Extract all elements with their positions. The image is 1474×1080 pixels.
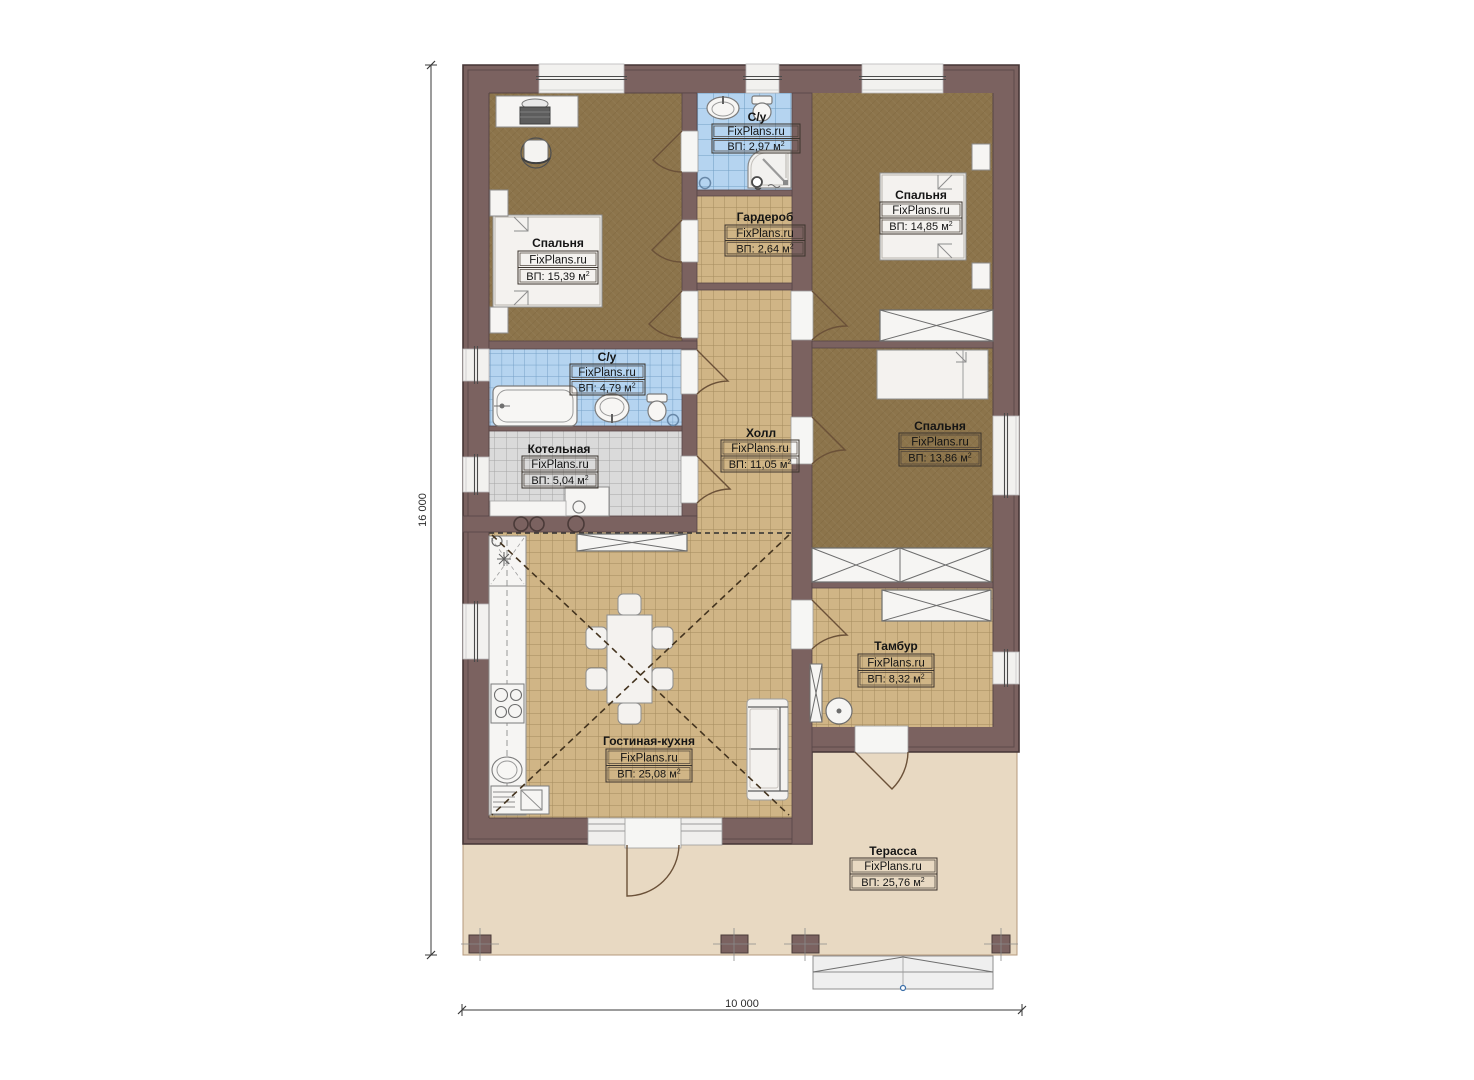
svg-text:FixPlans.ru: FixPlans.ru <box>529 255 587 267</box>
svg-text:ВП: 25,76 м2: ВП: 25,76 м2 <box>861 877 925 889</box>
svg-text:10 000: 10 000 <box>725 998 759 1010</box>
svg-text:FixPlans.ru: FixPlans.ru <box>892 205 950 217</box>
svg-text:FixPlans.ru: FixPlans.ru <box>531 459 589 471</box>
svg-text:ВП: 2,97 м2: ВП: 2,97 м2 <box>727 141 784 153</box>
svg-text:ВП: 5,04 м2: ВП: 5,04 м2 <box>531 475 588 487</box>
svg-text:16 000: 16 000 <box>417 493 429 527</box>
svg-text:FixPlans.ru: FixPlans.ru <box>867 658 925 670</box>
svg-text:Гардероб: Гардероб <box>737 210 794 224</box>
svg-text:Котельная: Котельная <box>528 442 591 456</box>
svg-text:FixPlans.ru: FixPlans.ru <box>578 367 636 379</box>
svg-text:FixPlans.ru: FixPlans.ru <box>727 126 785 138</box>
svg-text:С/у: С/у <box>748 110 767 124</box>
svg-text:ВП: 11,05 м2: ВП: 11,05 м2 <box>729 459 792 471</box>
svg-text:Терасса: Терасса <box>869 844 917 858</box>
svg-text:Гостиная-кухня: Гостиная-кухня <box>603 734 695 748</box>
svg-text:ВП: 25,08 м2: ВП: 25,08 м2 <box>617 769 681 781</box>
svg-text:ВП: 2,64 м2: ВП: 2,64 м2 <box>736 244 793 256</box>
svg-text:Холл: Холл <box>746 426 776 440</box>
svg-text:ВП: 13,86 м2: ВП: 13,86 м2 <box>908 453 972 465</box>
svg-text:С/у: С/у <box>598 350 617 364</box>
svg-text:ВП: 4,79 м2: ВП: 4,79 м2 <box>578 383 635 395</box>
svg-text:FixPlans.ru: FixPlans.ru <box>911 437 969 449</box>
svg-text:ВП: 8,32 м2: ВП: 8,32 м2 <box>867 674 924 686</box>
svg-text:FixPlans.ru: FixPlans.ru <box>864 861 922 873</box>
svg-text:Спальня: Спальня <box>914 419 966 433</box>
svg-text:ВП: 14,85 м2: ВП: 14,85 м2 <box>889 221 953 233</box>
svg-text:ВП: 15,39 м2: ВП: 15,39 м2 <box>526 271 590 283</box>
svg-text:Спальня: Спальня <box>895 188 947 202</box>
svg-text:Спальня: Спальня <box>532 236 584 250</box>
svg-text:FixPlans.ru: FixPlans.ru <box>731 443 789 455</box>
svg-text:FixPlans.ru: FixPlans.ru <box>620 753 678 765</box>
svg-text:Тамбур: Тамбур <box>874 639 918 653</box>
svg-text:FixPlans.ru: FixPlans.ru <box>736 228 794 240</box>
